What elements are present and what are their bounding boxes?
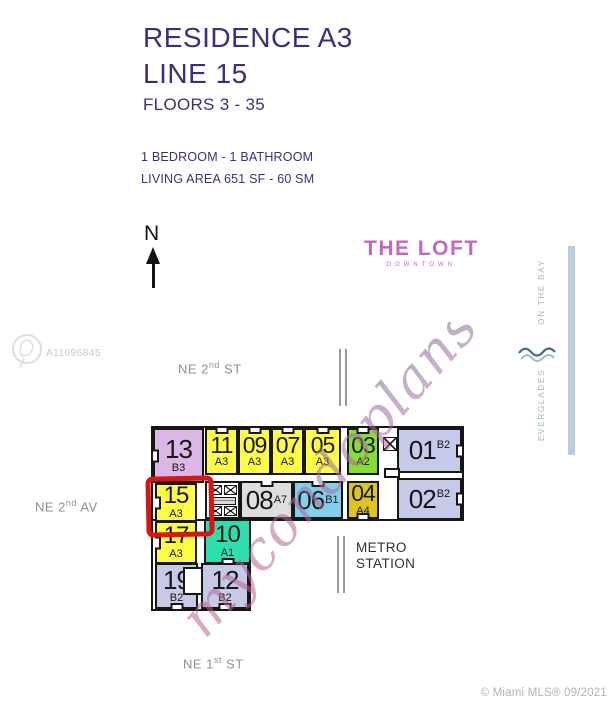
unit-01: 01B2 bbox=[397, 428, 462, 473]
street-label-top: NE 2nd ST bbox=[178, 360, 242, 376]
side-accent-bar bbox=[568, 246, 575, 455]
elevator-icon bbox=[383, 437, 397, 451]
unit-type: B2 bbox=[170, 593, 183, 604]
corridor-door bbox=[384, 468, 400, 478]
north-arrow-stem bbox=[152, 261, 155, 288]
street-top-text: NE 2 bbox=[178, 361, 209, 376]
highlighted-unit-box bbox=[145, 475, 214, 537]
unit-07: 07A3 bbox=[271, 428, 304, 475]
mls-logo-watermark bbox=[10, 332, 46, 375]
unit-12: 12B2 bbox=[201, 563, 249, 609]
floors-subtitle: FLOORS 3 - 35 bbox=[143, 95, 265, 115]
unit-number: 11 bbox=[211, 435, 233, 457]
wave-icon bbox=[517, 344, 559, 371]
street-bottom-ordinal: st bbox=[214, 655, 222, 665]
unit-number: 12 bbox=[212, 568, 239, 593]
unit-number: 08 bbox=[246, 488, 273, 513]
north-label: N bbox=[144, 222, 159, 246]
street-bottom-suffix: ST bbox=[222, 656, 244, 671]
metro-track-bottom bbox=[337, 536, 345, 593]
unit-type: B2 bbox=[437, 489, 450, 500]
unit-type: A4 bbox=[356, 506, 369, 517]
mls-credit: © Miami MLS® 09/2021 bbox=[481, 687, 607, 699]
street-left-text: NE 2 bbox=[35, 499, 66, 514]
unit-type: A2 bbox=[356, 457, 369, 468]
unit-type: B2 bbox=[218, 593, 231, 604]
street-left-suffix: AV bbox=[77, 499, 98, 514]
bedroom-spec: 1 BEDROOM - 1 BATHROOM bbox=[141, 150, 313, 164]
unit-type: B1 bbox=[325, 495, 338, 506]
line-title: LINE 15 bbox=[143, 58, 248, 90]
camera-leaf-icon bbox=[10, 332, 46, 370]
logo-subtitle: DOWNTOWN bbox=[364, 262, 479, 268]
unit-type: A3 bbox=[248, 457, 261, 468]
street-label-bottom: NE 1st ST bbox=[183, 655, 244, 671]
unit-type: A3 bbox=[215, 457, 228, 468]
unit-type: A3 bbox=[281, 457, 294, 468]
unit-11: 11A3 bbox=[205, 428, 238, 475]
unit-type: A1 bbox=[221, 548, 234, 559]
unit-type: A3 bbox=[316, 457, 329, 468]
building-logo: THE LOFT DOWNTOWN bbox=[364, 237, 479, 268]
unit-number: 01 bbox=[409, 438, 436, 463]
street-label-left: NE 2nd AV bbox=[35, 498, 98, 514]
unit-number: 10 bbox=[215, 524, 240, 547]
mls-id-watermark: A11096845 bbox=[46, 348, 101, 359]
unit-number: 13 bbox=[165, 437, 192, 462]
street-top-suffix: ST bbox=[220, 361, 242, 376]
unit-number: 09 bbox=[243, 435, 267, 457]
unit-number: 05 bbox=[311, 435, 335, 457]
elevator-icon bbox=[224, 506, 237, 516]
corridor-door bbox=[183, 567, 203, 595]
unit-number: 04 bbox=[351, 483, 375, 505]
unit-type: B3 bbox=[172, 463, 185, 474]
unit-number: 06 bbox=[297, 488, 324, 513]
unit-09: 09A3 bbox=[238, 428, 271, 475]
unit-05: 05A3 bbox=[304, 428, 341, 475]
logo-title: THE LOFT bbox=[364, 237, 479, 261]
residence-title: RESIDENCE A3 bbox=[143, 22, 353, 54]
everglades-line1: EVERGLADES bbox=[537, 369, 546, 441]
unit-06: 06B1 bbox=[293, 481, 343, 519]
unit-number: 02 bbox=[409, 487, 436, 512]
unit-02: 02B2 bbox=[397, 478, 462, 520]
living-area-spec: LIVING AREA 651 SF - 60 SM bbox=[141, 172, 314, 186]
floor-plan-sheet: A11096845 RESIDENCE A3 LINE 15 FLOORS 3 … bbox=[0, 0, 615, 708]
unit-03: 03A2 bbox=[347, 428, 379, 475]
unit-04: 04A4 bbox=[347, 481, 379, 519]
street-left-ordinal: nd bbox=[66, 498, 77, 508]
elevator-icon bbox=[224, 485, 237, 495]
metro-station-label: METRO STATION bbox=[356, 540, 436, 572]
unit-08: 08A7 bbox=[240, 481, 293, 519]
everglades-line2: ON THE BAY bbox=[537, 259, 546, 325]
street-bottom-text: NE 1 bbox=[183, 656, 214, 671]
unit-type: B2 bbox=[437, 440, 450, 451]
unit-number: 07 bbox=[276, 435, 300, 457]
unit-type: A7 bbox=[274, 495, 287, 506]
street-top-ordinal: nd bbox=[209, 360, 220, 370]
unit-number: 03 bbox=[351, 435, 375, 457]
unit-type: A3 bbox=[169, 549, 182, 560]
metro-track-top bbox=[339, 349, 347, 406]
